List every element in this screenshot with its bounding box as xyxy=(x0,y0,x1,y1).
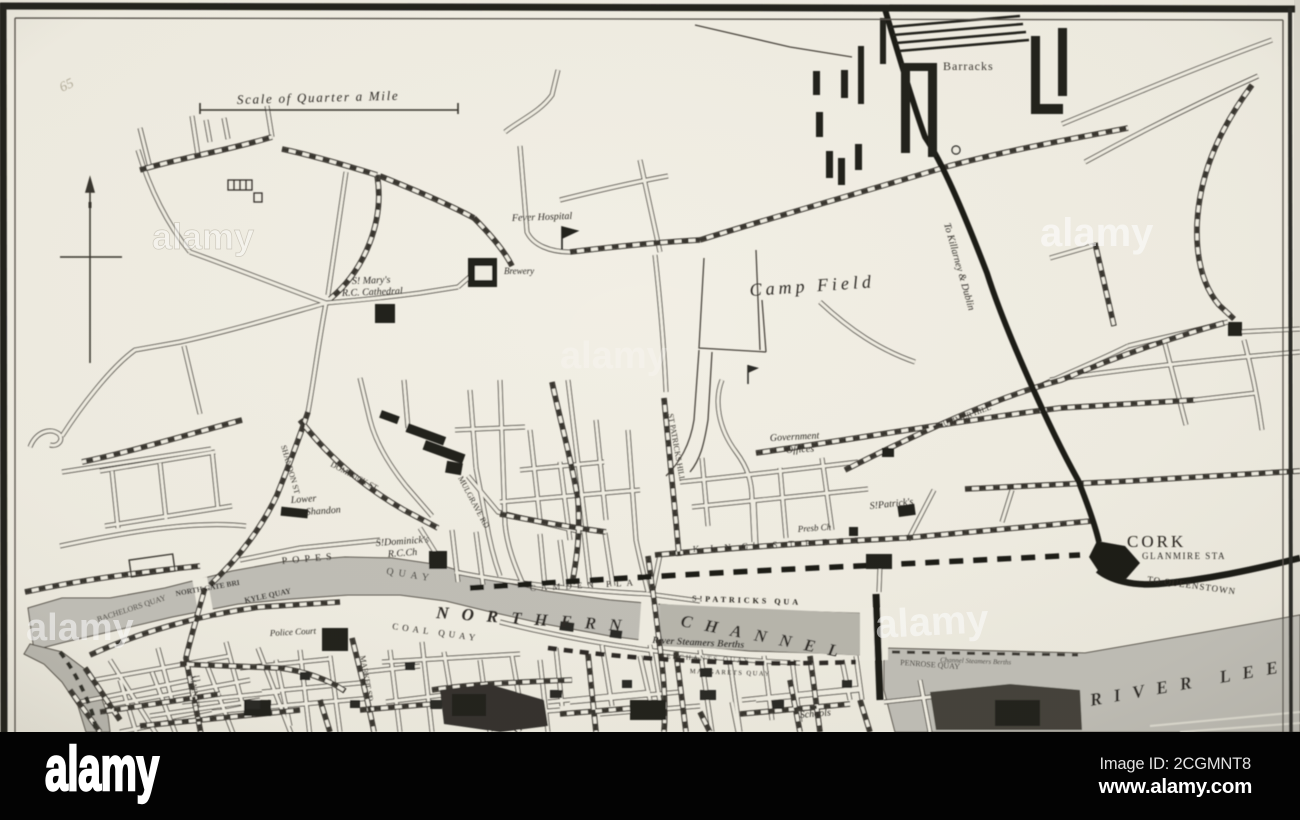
svg-text:Image ID: 2CGMNT8: Image ID: 2CGMNT8 xyxy=(1099,755,1251,773)
svg-text:www.alamy.com: www.alamy.com xyxy=(1098,775,1252,798)
svg-text:alamy: alamy xyxy=(45,734,160,804)
